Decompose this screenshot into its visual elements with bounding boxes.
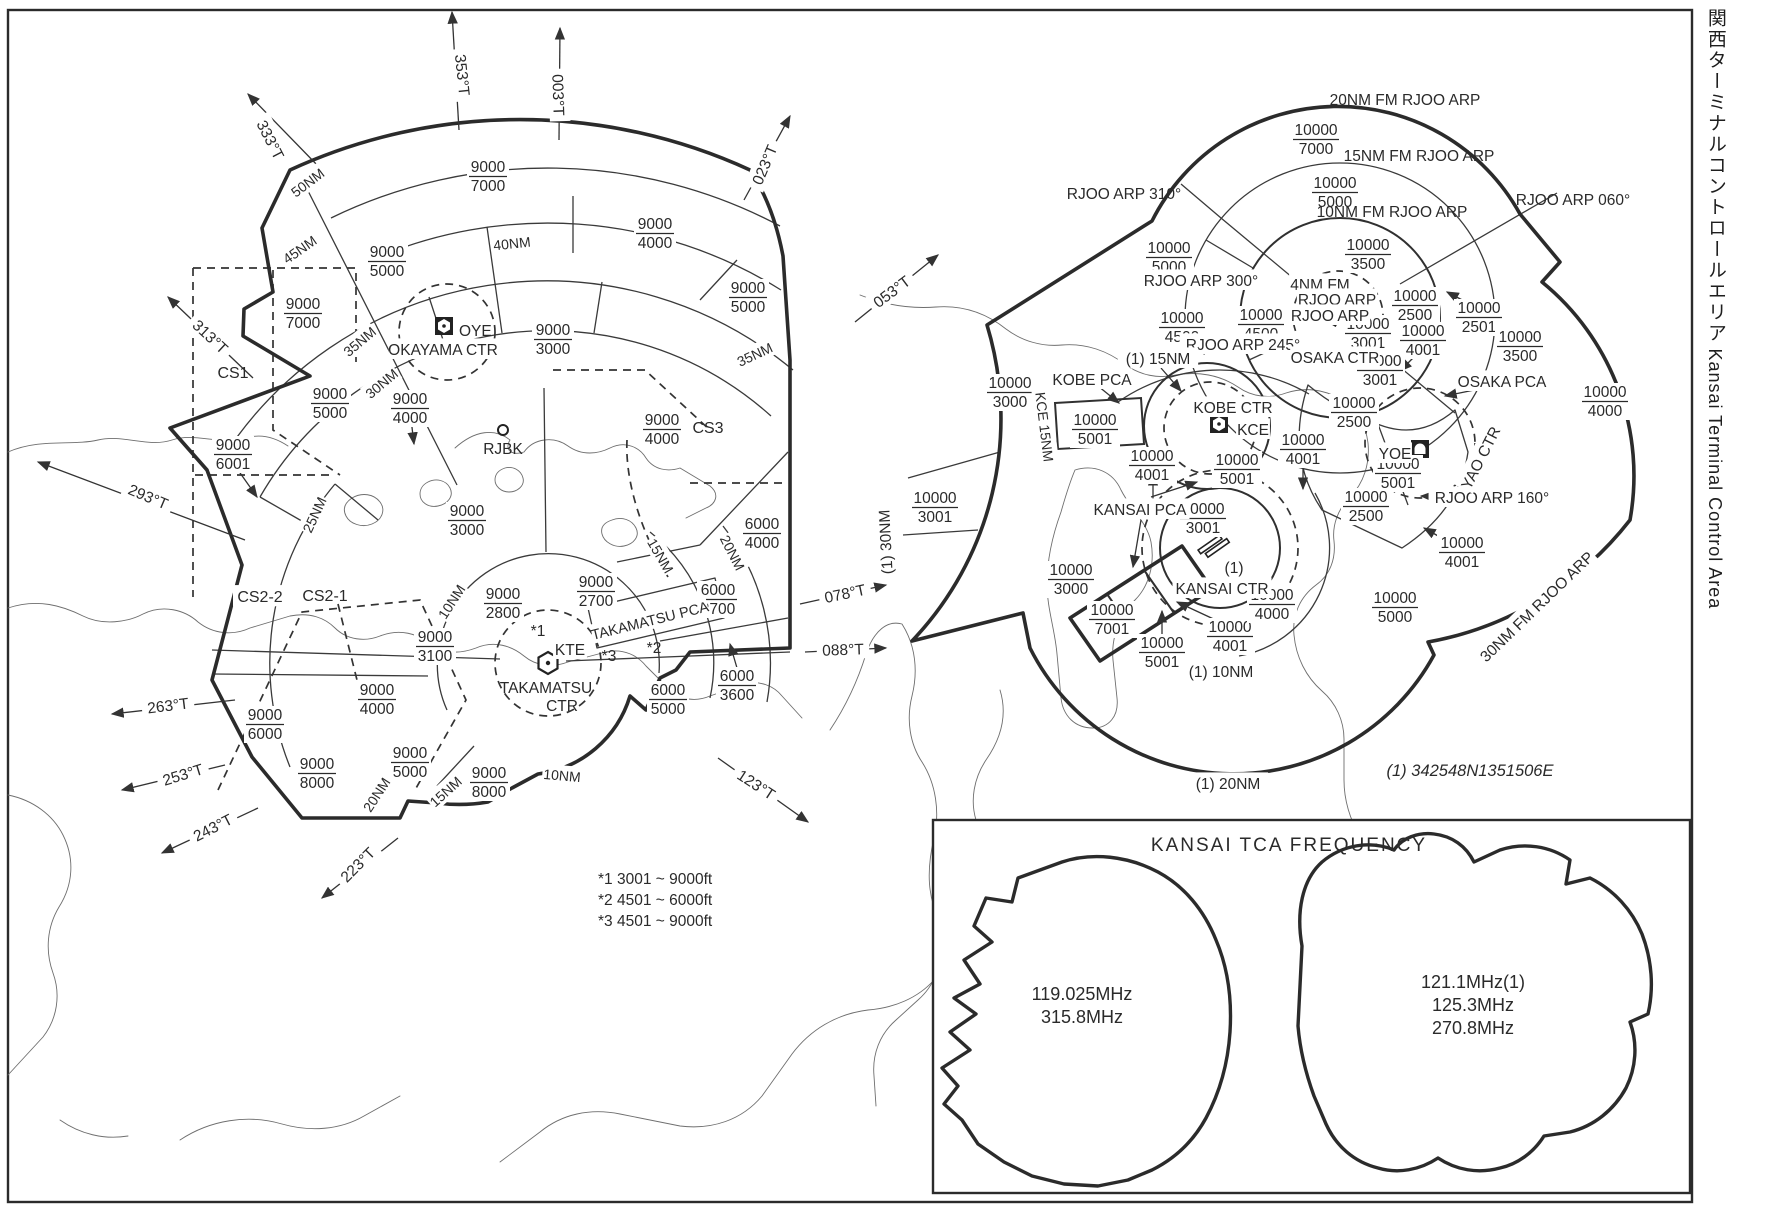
svg-text:RJOO ARP 160°: RJOO ARP 160° [1435,490,1549,507]
map-label: 243°T [184,806,240,848]
svg-text:CTR: CTR [546,698,578,715]
svg-text:9000: 9000 [450,503,485,520]
map-label: OSAKA PCA [1457,370,1547,391]
svg-text:5000: 5000 [651,701,686,718]
map-label: CS2-1 [302,588,347,605]
altitude-limit: 90006001 [212,436,254,473]
svg-text:10000: 10000 [988,375,1031,392]
map-label: RJOO ARP 060° [1516,192,1630,209]
map-label: (1) 15NM [1118,347,1198,368]
svg-text:5000: 5000 [370,263,405,280]
chart-title-english: Kansai Terminal Control Area [1705,348,1725,609]
svg-text:9000: 9000 [731,280,766,297]
map-label: 10NM [432,580,469,623]
map-label: RJOO ARP [1290,304,1370,325]
svg-text:5001: 5001 [1220,471,1254,488]
map-label: *3 [602,648,617,665]
east-frequency-3: 270.8MHz [1432,1018,1514,1038]
svg-text:OSAKA CTR: OSAKA CTR [1291,350,1380,367]
chart-title-japanese: 関西ターミナルコントロールエリア [1705,8,1726,344]
svg-text:4001: 4001 [1135,467,1169,484]
svg-text:10000: 10000 [1090,602,1133,619]
svg-text:6000: 6000 [651,682,686,699]
svg-text:CS2-1: CS2-1 [302,588,347,605]
map-label: 10NM FM RJOO ARP [1317,204,1468,221]
map-label: CS1 [217,365,248,382]
svg-text:KANSAI CTR: KANSAI CTR [1175,581,1268,598]
altitude-limit: 100005000 [1370,589,1420,626]
svg-text:9000: 9000 [286,296,321,313]
map-label: (1) 30NM [872,501,897,582]
svg-text:RJBK: RJBK [483,441,523,458]
svg-text:7000: 7000 [471,178,506,195]
svg-text:10000: 10000 [1498,329,1541,346]
svg-text:10000: 10000 [1160,310,1203,327]
svg-text:2500: 2500 [1349,508,1384,525]
svg-text:10000: 10000 [1401,323,1444,340]
svg-text:9000: 9000 [579,574,614,591]
altitude-limit: 90003000 [532,321,574,358]
legend-item-1: *1 3001 ~ 9000ft [598,871,713,888]
svg-text:10000: 10000 [1332,395,1375,412]
map-label: 253°T [155,756,211,791]
map-label: OYE [459,323,492,340]
svg-text:9000: 9000 [418,629,453,646]
svg-text:10000: 10000 [1049,562,1092,579]
svg-text:2500: 2500 [1398,307,1433,324]
svg-text:3000: 3000 [536,341,571,358]
svg-text:5000: 5000 [393,764,428,781]
svg-text:088°T: 088°T [822,641,865,659]
svg-text:9000: 9000 [216,437,251,454]
svg-text:6001: 6001 [216,456,250,473]
map-label: OKAYAMA CTR [388,338,498,359]
svg-text:10000: 10000 [1457,300,1500,317]
map-label: 40NM [491,231,532,254]
altitude-limit: 90008000 [468,764,510,801]
svg-text:10000: 10000 [1073,412,1116,429]
svg-text:9000: 9000 [471,159,506,176]
svg-text:5000: 5000 [313,405,348,422]
legend-item-3: *3 4501 ~ 9000ft [598,913,713,930]
svg-text:10000: 10000 [1393,288,1436,305]
altitude-limit: 60005000 [647,681,689,718]
svg-text:4000: 4000 [1255,606,1290,623]
svg-text:*1: *1 [531,623,546,640]
map-label: 20NM FM RJOO ARP [1330,92,1481,109]
svg-text:10000: 10000 [1294,122,1337,139]
svg-text:10000: 10000 [1281,432,1324,449]
svg-text:7000: 7000 [286,315,321,332]
coordinate-note: (1) 342548N1351506E [1387,762,1555,780]
svg-text:3000: 3000 [1054,581,1089,598]
svg-text:9000: 9000 [645,412,680,429]
svg-text:10000: 10000 [1373,590,1416,607]
altitude-labels-layer: 9000700090004000900050009000700090005000… [212,121,1630,801]
altitude-limit: 90004000 [641,411,683,448]
svg-text:3100: 3100 [418,648,453,665]
east-frequencies: 121.1MHz(1) 125.3MHz 270.8MHz [1421,972,1525,1038]
altitude-limit: 90005000 [366,243,408,280]
altitude-limit: 90007000 [467,158,509,195]
chart-page: 9000700090004000900050009000700090005000… [0,0,1774,1211]
svg-text:6000: 6000 [745,516,780,533]
map-label: KANSAI CTR [1173,577,1272,598]
svg-text:6000: 6000 [248,726,283,743]
svg-text:3000: 3000 [993,394,1028,411]
map-label: KANSAI PCA [1091,498,1190,519]
legend: *1 3001 ~ 9000ft *2 4501 ~ 6000ft *3 450… [598,871,713,930]
svg-text:8000: 8000 [472,784,507,801]
altitude-limit: 100004001 [1127,447,1177,484]
svg-text:10000: 10000 [1208,619,1251,636]
svg-text:4001: 4001 [1406,342,1440,359]
svg-text:10NM FM RJOO ARP: 10NM FM RJOO ARP [1317,204,1468,221]
altitude-limit: 100004000 [1580,383,1630,420]
svg-text:9000: 9000 [638,216,673,233]
map-label: 293°T [120,476,176,515]
altitude-limit: 100003500 [1343,236,1393,273]
map-label: 45NM [278,230,321,268]
svg-text:10000: 10000 [1440,535,1483,552]
map-label: 35NM [338,321,380,361]
svg-text:3600: 3600 [720,687,755,704]
svg-text:4001: 4001 [1213,638,1247,655]
chart-title: 関西ターミナルコントロールエリア Kansai Terminal Control… [1700,8,1730,1203]
svg-text:9000: 9000 [393,391,428,408]
altitude-limit: 100002500 [1341,488,1391,525]
svg-text:KOBE CTR: KOBE CTR [1193,400,1272,417]
svg-text:10000: 10000 [1313,175,1356,192]
map-label: KOBE CTR [1193,396,1273,417]
svg-text:9000: 9000 [393,745,428,762]
svg-text:7001: 7001 [1095,621,1129,638]
svg-text:TAKAMATSU: TAKAMATSU [500,680,592,697]
svg-text:RJOO ARP 310°: RJOO ARP 310° [1067,186,1181,203]
altitude-limit: 90003100 [414,628,456,665]
svg-text:30NM FM RJOO ARP: 30NM FM RJOO ARP [1477,549,1597,666]
airport-symbol-oye [435,317,453,335]
svg-text:5001: 5001 [1078,431,1112,448]
svg-text:(1) 15NM: (1) 15NM [1126,351,1191,368]
map-label: (1) [1217,556,1251,577]
altitude-limit: 90004000 [634,215,676,252]
altitude-limit: 100003500 [1495,328,1545,365]
svg-text:9000: 9000 [248,707,283,724]
svg-text:10NM: 10NM [543,766,582,785]
svg-text:5000: 5000 [1378,609,1413,626]
svg-text:KANSAI PCA: KANSAI PCA [1093,502,1187,519]
map-label: (1) 20NM [1188,772,1268,793]
map-label: 333°T [250,111,292,167]
svg-text:2800: 2800 [486,605,521,622]
airport-symbol-rjbk [498,425,508,435]
svg-text:3001: 3001 [918,509,952,526]
altitude-limit: 90008000 [296,755,338,792]
svg-text:10000: 10000 [1346,237,1389,254]
altitude-limit: 100002500 [1329,394,1379,431]
svg-text:20NM FM RJOO ARP: 20NM FM RJOO ARP [1330,92,1481,109]
altitude-limit: 100007000 [1291,121,1341,158]
altitude-limit: 100002500 [1390,287,1440,324]
airport-symbol-kce [1210,415,1228,433]
altitude-limit: 100005001 [1212,451,1262,488]
altitude-limit: 90005000 [389,744,431,781]
map-label: CS3 [692,420,723,437]
svg-text:10000: 10000 [1239,307,1282,324]
svg-text:4000: 4000 [360,701,395,718]
altitude-limit: 90004000 [356,681,398,718]
svg-text:4000: 4000 [745,535,780,552]
svg-text:RJOO ARP: RJOO ARP [1291,308,1369,325]
svg-text:9000: 9000 [370,244,405,261]
svg-text:2501: 2501 [1462,319,1496,336]
svg-text:RJOO ARP 300°: RJOO ARP 300° [1144,273,1258,290]
svg-text:RJOO ARP 060°: RJOO ARP 060° [1516,192,1630,209]
svg-text:10000: 10000 [1583,384,1626,401]
svg-text:15NM FM RJOO ARP: 15NM FM RJOO ARP [1344,148,1495,165]
map-label: OSAKA CTR [1290,346,1380,367]
altitude-limit: 90005000 [727,279,769,316]
svg-text:6000: 6000 [720,668,755,685]
altitude-limit: 100007001 [1087,601,1137,638]
svg-text:(1): (1) [1225,560,1244,577]
svg-text:4000: 4000 [638,235,673,252]
svg-text:9000: 9000 [313,386,348,403]
map-label: (1) 10NM [1181,660,1261,681]
map-label: RJBK [483,441,523,458]
map-label: 023°T [744,136,783,192]
altitude-limit: 100005001 [1137,634,1187,671]
svg-text:3000: 3000 [450,522,485,539]
altitude-limit: 60003600 [716,667,758,704]
altitude-limit: 90007000 [282,295,324,332]
altitude-limit: 100004001 [1398,322,1448,359]
svg-text:9000: 9000 [536,322,571,339]
svg-text:10000: 10000 [1215,452,1258,469]
svg-text:4000: 4000 [393,410,428,427]
altitude-limit: 90004000 [389,390,431,427]
svg-text:3500: 3500 [1351,256,1386,273]
altitude-limit: 90002800 [482,585,524,622]
svg-text:5000: 5000 [731,299,766,316]
map-label: TAKAMATSU [500,680,592,697]
svg-text:10000: 10000 [1344,489,1387,506]
svg-text:6000: 6000 [701,582,736,599]
altitude-limit: 100004001 [1205,618,1255,655]
map-label: 088°T [816,637,869,659]
svg-text:7000: 7000 [1299,141,1334,158]
svg-text:2500: 2500 [1337,414,1372,431]
legend-item-2: *2 4501 ~ 6000ft [598,892,713,909]
map-label: KOBE PCA [1052,368,1132,389]
airspace-chart: 9000700090004000900050009000700090005000… [0,0,1774,1211]
east-frequency-1: 121.1MHz(1) [1421,972,1525,992]
map-label: 30NM FM RJOO ARP [1473,545,1599,667]
svg-text:9000: 9000 [360,682,395,699]
svg-text:10000: 10000 [1147,240,1190,257]
altitude-limit: 100003001 [910,489,960,526]
svg-text:(1) 10NM: (1) 10NM [1189,664,1254,681]
map-label: KTE [553,638,587,659]
svg-text:RJOO ARP 245°: RJOO ARP 245° [1186,337,1300,354]
map-label: 223°T [331,838,383,890]
svg-text:4001: 4001 [1445,554,1479,571]
svg-text:2700: 2700 [579,593,614,610]
map-label: 25NM [297,493,331,537]
svg-text:CS1: CS1 [217,365,248,382]
altitude-limit: 100004001 [1278,431,1328,468]
map-label: CS2-2 [233,585,287,606]
svg-text:*3: *3 [602,648,617,665]
cs1-dashed [193,268,356,597]
svg-text:353°T: 353°T [451,54,472,98]
svg-text:*2: *2 [647,640,662,657]
svg-text:KTE: KTE [555,642,585,659]
svg-text:9000: 9000 [472,765,507,782]
svg-text:4000: 4000 [1588,403,1623,420]
svg-text:9000: 9000 [300,756,335,773]
svg-text:CS3: CS3 [692,420,723,437]
east-frequency-2: 125.3MHz [1432,995,1514,1015]
svg-text:9000: 9000 [486,586,521,603]
map-label: 10NM [542,764,583,786]
map-label: 15NM FM RJOO ARP [1344,148,1495,165]
map-label: 353°T [450,48,476,102]
map-label: CTR [546,698,578,715]
svg-text:KOBE PCA: KOBE PCA [1052,372,1132,389]
map-label: 078°T [817,577,873,608]
svg-text:10000: 10000 [913,490,956,507]
svg-text:5001: 5001 [1145,654,1179,671]
svg-text:8000: 8000 [300,775,335,792]
svg-text:003°T: 003°T [548,74,566,117]
svg-text:3001: 3001 [1363,372,1397,389]
map-label: *2 [647,640,662,657]
map-label: YOE [1378,442,1412,463]
altitude-limit: 100004001 [1437,534,1487,571]
svg-text:4000: 4000 [645,431,680,448]
altitude-limit: 100005001 [1070,411,1120,448]
map-label: RJOO ARP 245° [1180,333,1307,354]
svg-text:10000: 10000 [1140,635,1183,652]
frequency-box: KANSAI TCA FREQUENCY 119.025MHz 315.8MHz… [933,820,1690,1193]
map-label: RJOO ARP 300° [1138,269,1265,290]
svg-text:(1) 20NM: (1) 20NM [1196,776,1261,793]
map-label: *1 [531,623,546,640]
altitude-limit: 90003000 [446,502,488,539]
west-frequency-2: 315.8MHz [1041,1007,1123,1027]
map-label: 263°T [141,691,196,718]
svg-text:KCE: KCE [1237,422,1269,439]
altitude-limit: 90002700 [575,573,617,610]
map-label: 123°T [729,761,784,807]
map-label: 003°T [548,68,570,121]
map-label: 053°T [864,267,918,315]
map-label: KCE 15NM [1031,389,1059,464]
svg-text:OKAYAMA CTR: OKAYAMA CTR [388,342,498,359]
map-label: KCE [1236,418,1270,439]
svg-text:(1) 30NM: (1) 30NM [876,509,896,574]
altitude-limit: 60004000 [741,515,783,552]
west-frequency-1: 119.025MHz [1032,984,1133,1004]
svg-text:3500: 3500 [1503,348,1538,365]
svg-text:10000: 10000 [1130,448,1173,465]
svg-text:OSAKA PCA: OSAKA PCA [1458,374,1547,391]
altitude-limit: 90006000 [244,706,286,743]
map-label: RJOO ARP 310° [1067,186,1181,203]
altitude-limit: 100003000 [1046,561,1096,598]
svg-text:4001: 4001 [1286,451,1320,468]
svg-text:YOE: YOE [1379,446,1412,463]
altitude-limit: 100003000 [985,374,1035,411]
svg-text:CS2-2: CS2-2 [237,589,282,606]
svg-text:OYE: OYE [459,323,492,340]
altitude-limit: 90005000 [309,385,351,422]
svg-text:3001: 3001 [1186,520,1220,537]
map-label: RJOO ARP 160° [1429,486,1556,507]
map-label: 20NM [357,773,394,816]
